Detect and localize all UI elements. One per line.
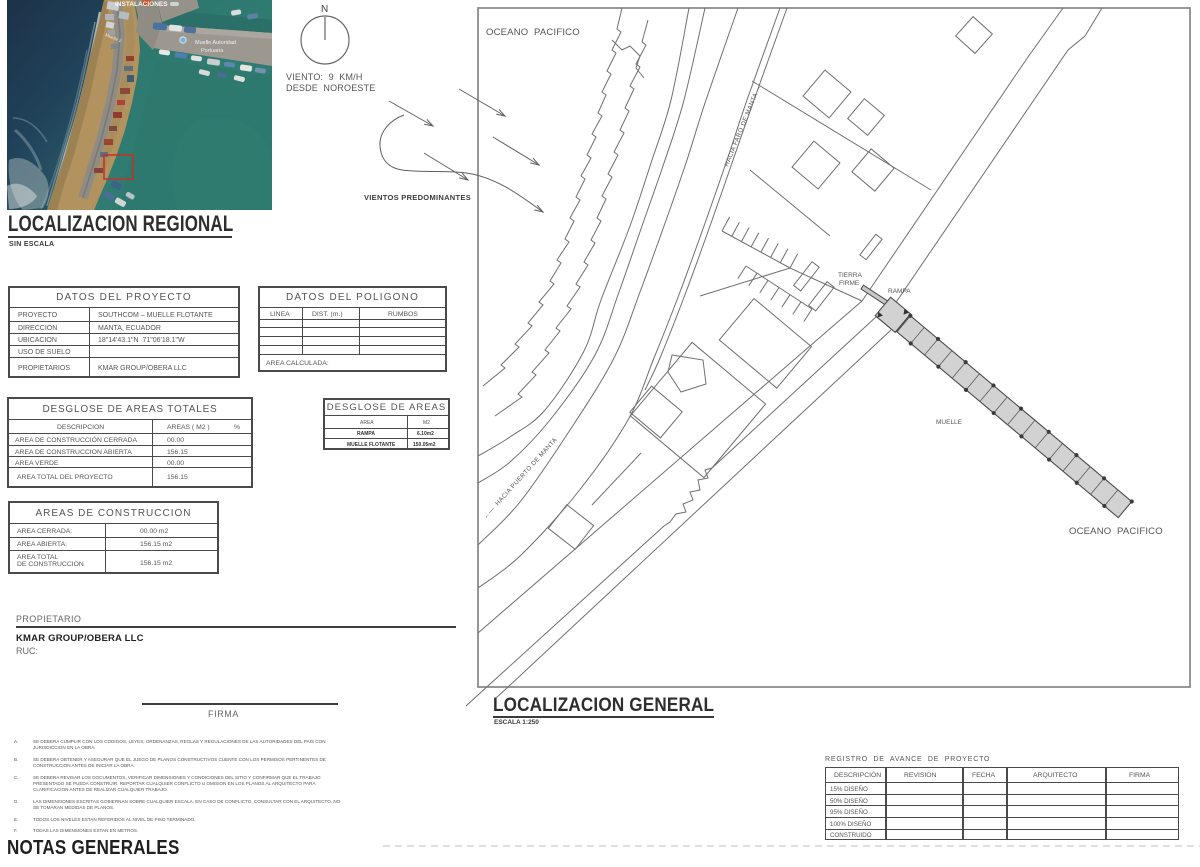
svg-text:MUELLE: MUELLE [936,419,963,426]
svg-text:FIRME: FIRME [839,280,860,287]
svg-text:TIERRA: TIERRA [838,272,863,279]
svg-text:OCEANO PACIFICO: OCEANO PACIFICO [486,27,580,38]
svg-text:N: N [321,4,328,15]
svg-text:VIENTOS PREDOMINANTES: VIENTOS PREDOMINANTES [364,193,471,202]
svg-text:OCEANO PACIFICO: OCEANO PACIFICO [1069,526,1163,537]
svg-text:VIENTO: 9 KM/H: VIENTO: 9 KM/H [286,72,363,82]
svg-text:RAMPA: RAMPA [888,288,911,295]
svg-text:DESDE NOROESTE: DESDE NOROESTE [286,83,376,93]
